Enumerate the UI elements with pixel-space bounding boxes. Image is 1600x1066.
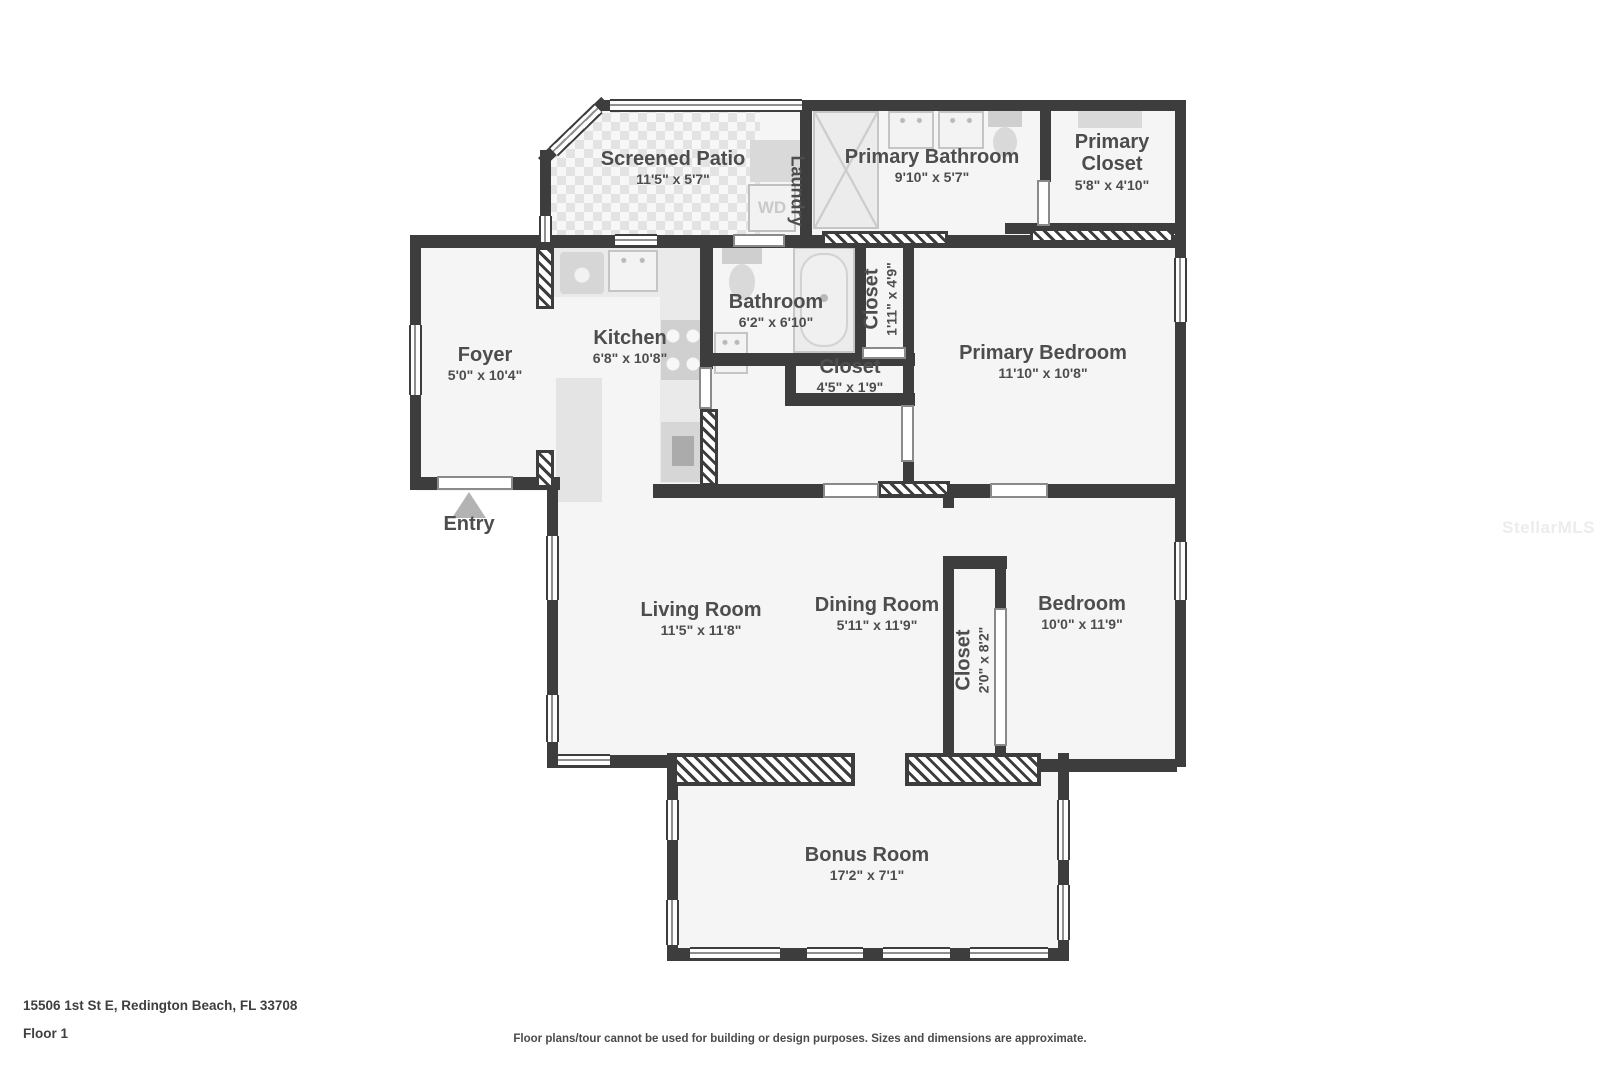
window-icon xyxy=(558,754,610,767)
dishwasher-icon xyxy=(560,252,604,294)
window-icon xyxy=(1057,885,1070,940)
room-label-foyer: Foyer 5'0" x 10'4" xyxy=(448,344,522,385)
room-label-living-room: Living Room 11'5" x 11'8" xyxy=(640,599,761,640)
wall-hatch xyxy=(536,247,554,309)
watermark: StellarMLS xyxy=(1502,518,1595,538)
wall-segment xyxy=(800,100,1185,111)
wall-hatch xyxy=(536,450,554,488)
wall-hatch xyxy=(822,231,948,246)
washer-dryer-label: WD xyxy=(758,198,786,218)
floor-plan-canvas: WD xyxy=(0,0,1600,1066)
wall-segment xyxy=(700,247,713,369)
door-icon xyxy=(823,483,879,498)
room-label-kitchen: Kitchen 6'8" x 10'8" xyxy=(593,327,667,368)
room-label-closet-hall: Closet 1'11" x 4'9" xyxy=(860,262,901,336)
kitchen-sink-icon xyxy=(608,250,658,292)
wall-hatch xyxy=(700,409,718,486)
room-label-primary-closet: Primary Closet 5'8" x 4'10" xyxy=(1053,131,1171,195)
room-label-bathroom: Bathroom 6'2" x 6'10" xyxy=(729,291,823,332)
wall-hatch xyxy=(878,481,950,497)
sink-icon xyxy=(888,111,934,149)
wall-segment xyxy=(903,235,914,407)
window-icon xyxy=(539,216,552,242)
door-icon xyxy=(699,367,712,409)
property-address: 15506 1st St E, Redington Beach, FL 3370… xyxy=(23,998,297,1013)
room-label-bedroom: Bedroom 10'0" x 11'9" xyxy=(1038,593,1126,634)
room-label-primary-bedroom: Primary Bedroom 11'10" x 10'8" xyxy=(959,342,1127,383)
window-icon xyxy=(546,536,559,600)
wall-segment xyxy=(1175,100,1186,240)
window-icon xyxy=(970,947,1048,960)
door-icon xyxy=(990,483,1048,498)
disclaimer-text: Floor plans/tour cannot be used for buil… xyxy=(0,1033,1600,1045)
sink-icon xyxy=(938,111,984,149)
door-icon xyxy=(733,234,785,247)
window-icon xyxy=(409,325,422,395)
toilet-icon xyxy=(722,248,762,264)
entry-door-icon xyxy=(437,476,513,490)
door-icon xyxy=(901,405,914,462)
window-icon xyxy=(666,800,679,840)
window-icon xyxy=(610,99,802,112)
room-label-laundry: Laundry xyxy=(787,155,808,226)
window-icon xyxy=(1174,542,1187,600)
room-label-closet-small: Closet 4'5" x 1'9" xyxy=(817,356,884,397)
window-icon xyxy=(615,234,657,247)
room-label-primary-bathroom: Primary Bathroom 9'10" x 5'7" xyxy=(845,146,1020,187)
room-label-dining-room: Dining Room 5'11" x 11'9" xyxy=(815,594,939,635)
window-icon xyxy=(807,947,863,960)
wall-hatch xyxy=(1030,228,1174,243)
entry-label: Entry xyxy=(443,513,494,535)
window-icon xyxy=(1057,800,1070,860)
room-label-closet-bedroom: Closet 2'0" x 8'2" xyxy=(952,627,993,694)
closet-shelf-icon xyxy=(1078,110,1142,128)
oven-door-icon xyxy=(672,436,694,466)
wall-segment xyxy=(1040,110,1051,182)
toilet-icon xyxy=(988,111,1022,127)
window-icon xyxy=(883,947,950,960)
window-icon xyxy=(1174,258,1187,322)
room-label-bonus-room: Bonus Room 17'2" x 7'1" xyxy=(805,844,929,885)
refrigerator-icon xyxy=(556,378,602,502)
closet-door-icon xyxy=(994,608,1007,746)
wall-hatch xyxy=(673,753,855,786)
room-label-screened-patio: Screened Patio 11'5" x 5'7" xyxy=(601,148,746,189)
window-icon xyxy=(666,900,679,945)
entry-label-text: Entry xyxy=(443,513,494,535)
wall-hatch xyxy=(905,753,1041,786)
door-icon xyxy=(1037,180,1050,226)
window-icon xyxy=(546,695,559,742)
window-icon xyxy=(690,947,780,960)
